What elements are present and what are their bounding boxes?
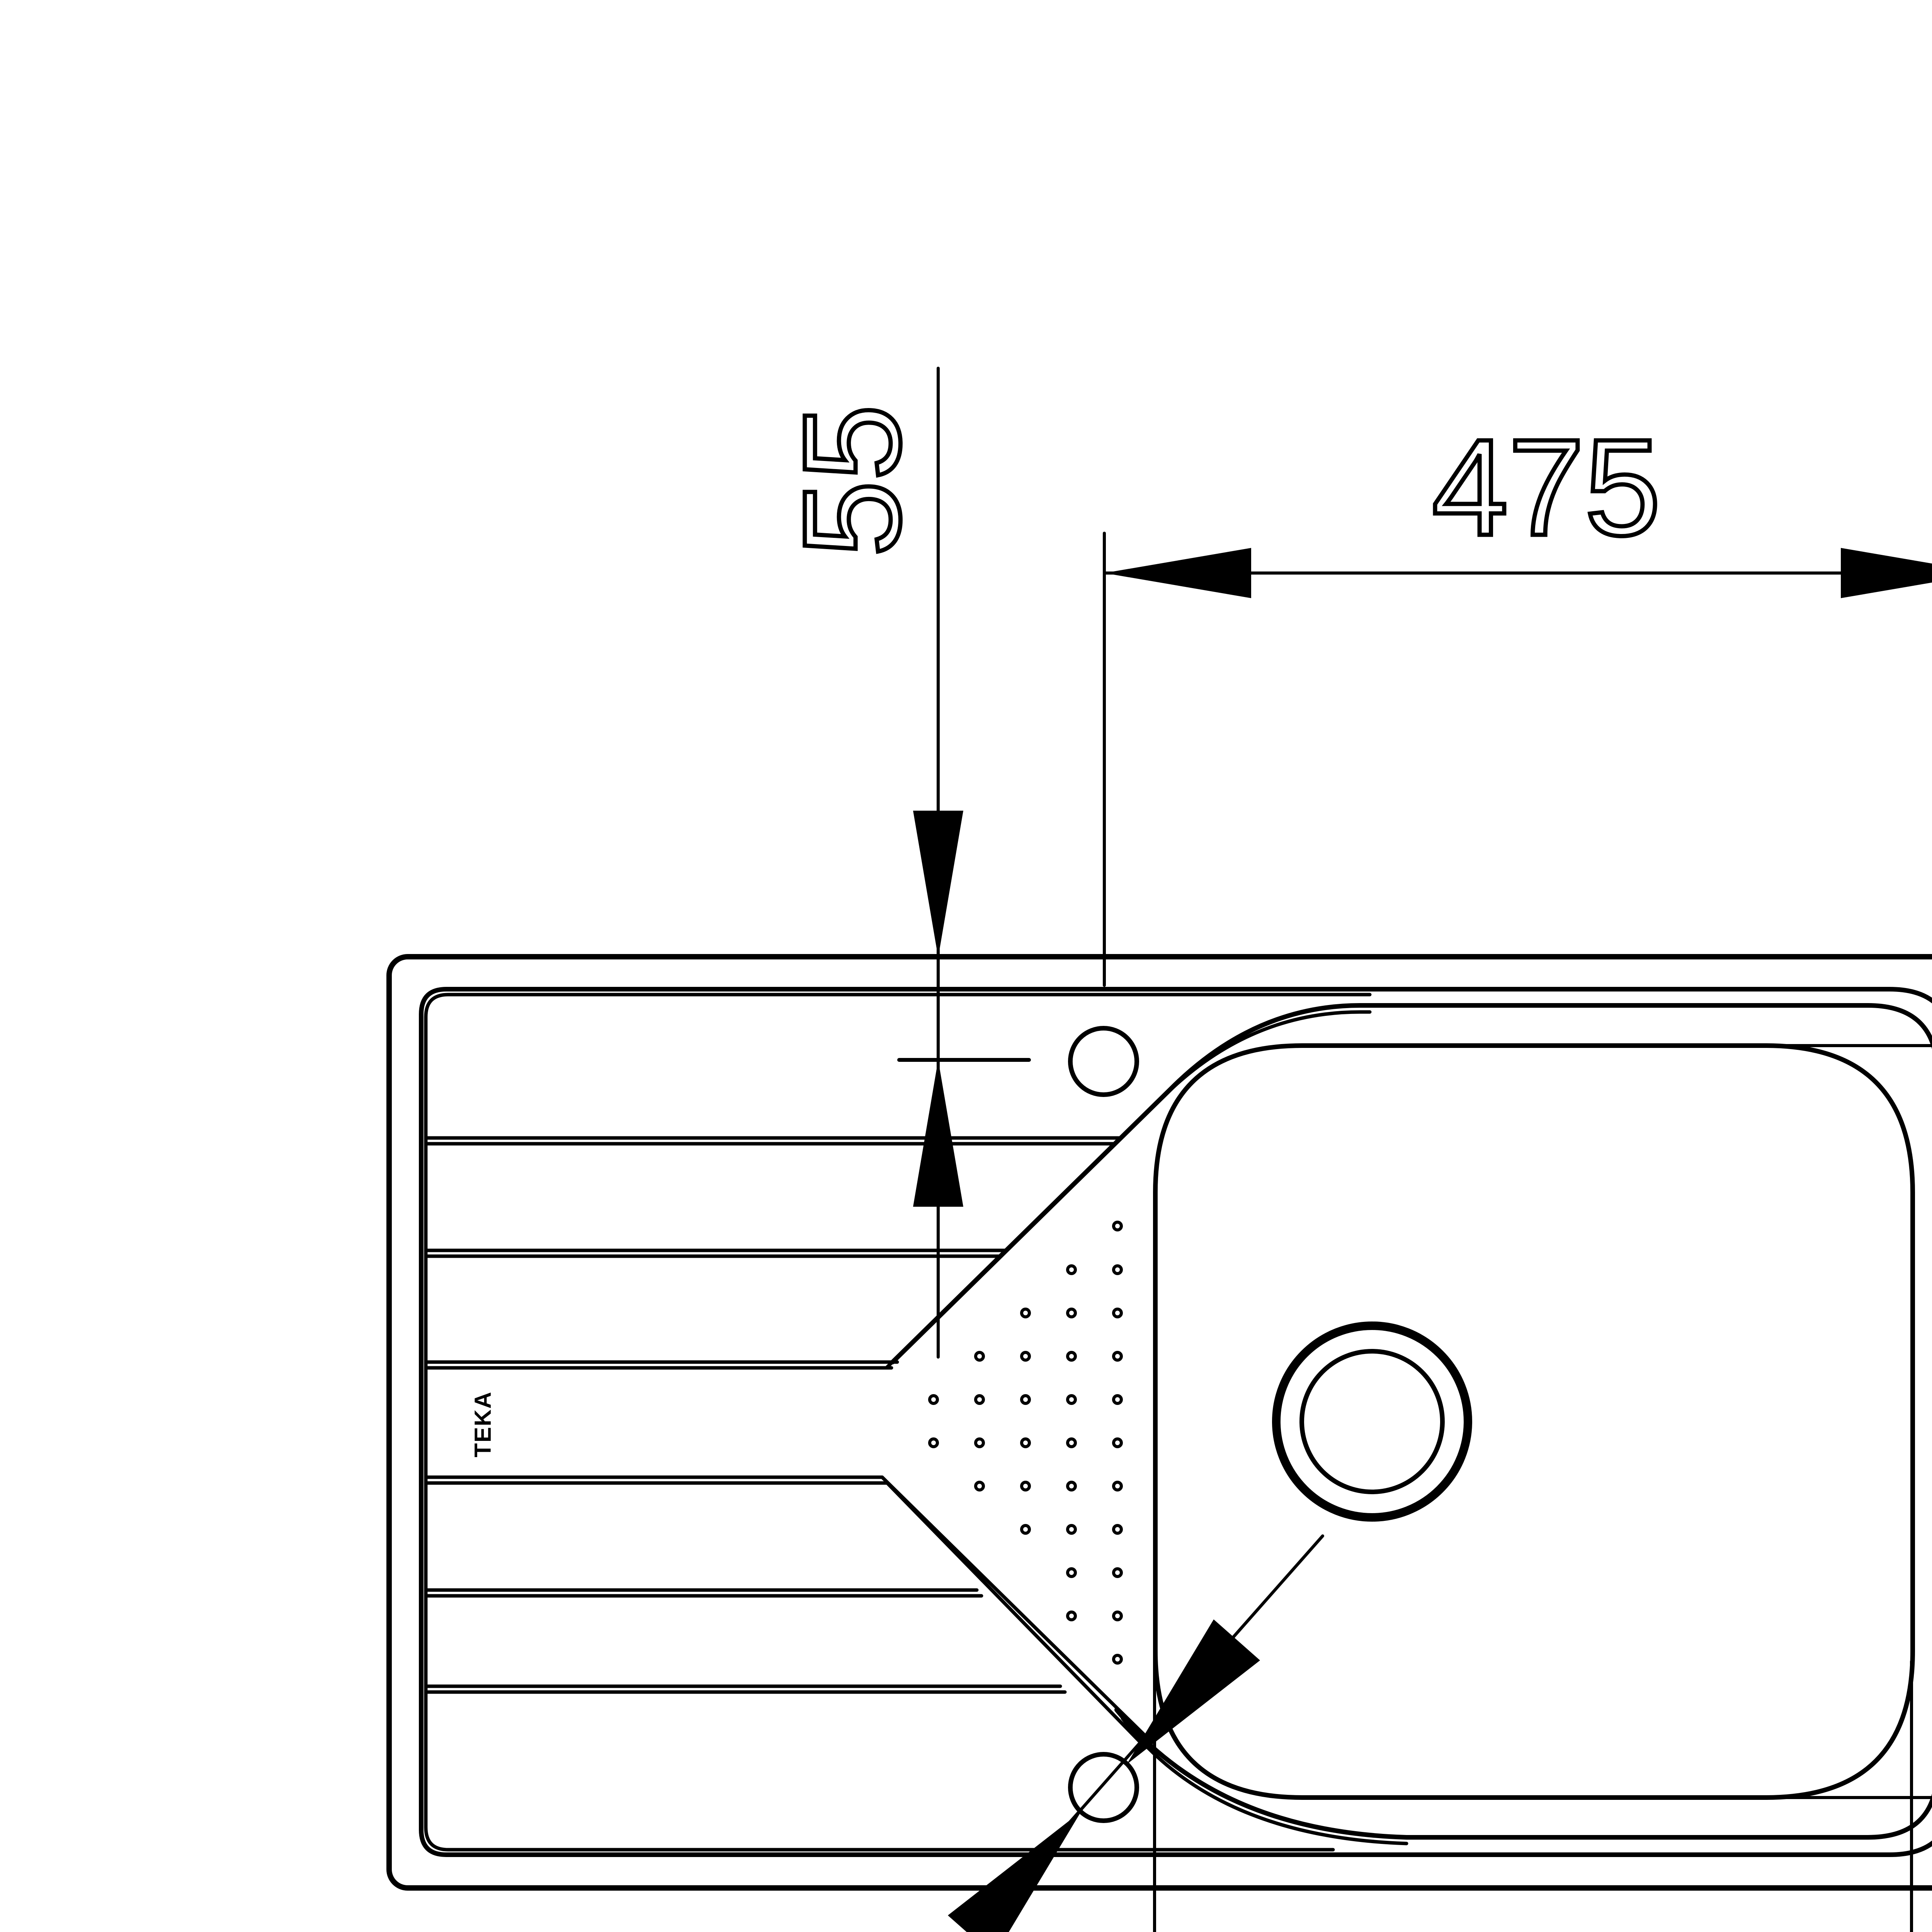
svg-text:475: 475 bbox=[1432, 411, 1661, 564]
svg-text:TEKA: TEKA bbox=[470, 1391, 496, 1457]
svg-text:55: 55 bbox=[776, 405, 929, 557]
